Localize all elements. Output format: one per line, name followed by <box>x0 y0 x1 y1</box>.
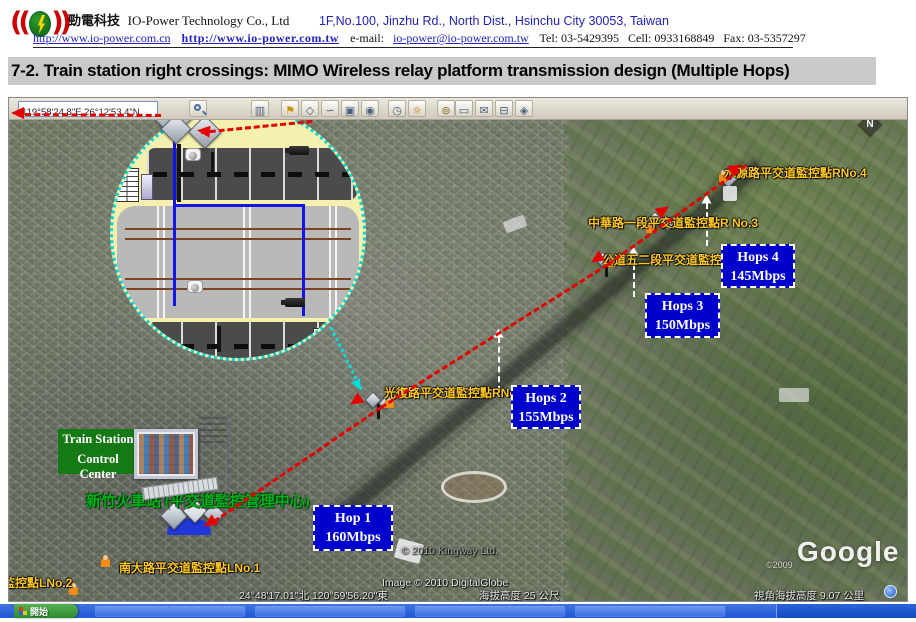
hop3-label: Hops 3 <box>662 299 704 314</box>
hop3-rate: 150Mbps <box>647 318 718 334</box>
email-label: e-mail: <box>350 31 384 45</box>
arrowhead-to-antenna <box>196 124 210 137</box>
building-white <box>779 388 809 402</box>
rail-line <box>125 278 351 280</box>
pushpin-icon: ⚑ <box>285 104 295 117</box>
hop2-box: Hops 2 155Mbps <box>511 385 581 429</box>
hop2-rate: 155Mbps <box>513 410 579 426</box>
system-tray <box>776 604 916 618</box>
hop1-label: Hop 1 <box>335 511 371 526</box>
logo-arcs-left-icon: (( <box>10 7 27 38</box>
toolbar-view-in-maps-button[interactable]: ◈ <box>515 100 533 117</box>
camera-grid-screen <box>139 434 193 474</box>
hop2-label: Hops 2 <box>525 391 567 406</box>
crossing-point-l1-label: 南大路平交道監控點LNo.1 <box>119 559 260 576</box>
windows-taskbar: 開始 <box>0 604 916 618</box>
company-line: 勁電科技 IO-Power Technology Co., Ltd 1F,No.… <box>68 10 669 29</box>
control-center-line2: Control Center <box>58 452 138 482</box>
camera-pole <box>177 144 181 202</box>
network-cable-horizontal <box>173 204 305 207</box>
station-label: 新竹火車站 (平交道監控管理中心) <box>86 490 310 511</box>
company-name-en: IO-Power Technology Co., Ltd <box>128 13 290 28</box>
taskbar-task-button[interactable] <box>415 606 565 617</box>
taskbar-task-button[interactable] <box>95 606 245 617</box>
hop3-box: Hops 3 150Mbps <box>645 293 720 338</box>
dome-camera-icon <box>185 148 201 161</box>
taskbar-task-button[interactable] <box>575 606 725 617</box>
url-cn-link[interactable]: http://www.io-power.com.cn <box>33 31 171 45</box>
maps-view-icon: ◈ <box>520 104 528 117</box>
windows-logo-icon <box>19 607 27 615</box>
toolbar-ruler-button[interactable]: ▭ <box>455 100 473 117</box>
dome-camera-icon <box>187 280 203 293</box>
sun-icon: ☼ <box>412 104 422 117</box>
google-earth-map[interactable]: ▥ ⚑ ◇ ∽ ▣ ◉ ◷ ☼ ⊚ ▭ ✉ ⊟ ◈ <box>8 97 908 602</box>
letterhead: (( )) 勁電科技 IO-Power Technology Co., Ltd … <box>0 0 916 54</box>
print-icon: ⊟ <box>499 104 508 117</box>
google-copyright: ©2009 <box>766 560 793 570</box>
taskbar-task-button[interactable] <box>255 606 405 617</box>
google-logo: Google <box>797 536 899 568</box>
slide-title: 7-2. Train station right crossings: MIMO… <box>8 57 876 81</box>
hop4-box: Hops 4 145Mbps <box>721 244 795 288</box>
station-highlight-circle <box>110 105 366 361</box>
box-camera-icon <box>285 298 305 307</box>
streaming-icon <box>884 585 897 598</box>
email-link[interactable]: io-power@io-power.com.tw <box>393 31 529 45</box>
company-address: 1F,No.100, Jinzhu Rd., North Dist., Hsin… <box>319 14 669 28</box>
toolbar-historical-imagery-button[interactable]: ◷ <box>388 100 406 117</box>
eye-altitude-readout: 視角海拔高度 9.07 公里 <box>754 588 864 602</box>
start-button[interactable]: 開始 <box>14 604 78 618</box>
contact-line: http://www.io-power.com.cn http://www.io… <box>33 31 812 46</box>
arrowhead-left <box>11 107 24 119</box>
toolbar-record-tour-button[interactable]: ◉ <box>361 100 379 117</box>
rail-line <box>125 288 351 290</box>
rail-line <box>125 228 351 230</box>
hop4-rate: 145Mbps <box>723 269 793 285</box>
presentation-slide: (( )) 勁電科技 IO-Power Technology Co., Ltd … <box>0 0 916 622</box>
path-icon: ∽ <box>325 104 334 117</box>
camera-pole <box>211 152 214 174</box>
control-center-line1: Train Station <box>63 432 134 446</box>
email-icon: ✉ <box>479 104 488 117</box>
equipment-rack-icon <box>115 168 139 202</box>
toolbar-polygon-button[interactable]: ◇ <box>301 100 319 117</box>
stadium-track <box>441 471 507 503</box>
start-label: 開始 <box>30 605 48 618</box>
pointer-coordinates: 24°48'17.01"北 120°59'56.20"東 <box>239 588 388 602</box>
toolbar-pushpin-button[interactable]: ⚑ <box>281 100 299 117</box>
toolbar-email-button[interactable]: ✉ <box>475 100 493 117</box>
fax-text: Fax: 03-5357297 <box>723 31 805 45</box>
toolbar-print-button[interactable]: ⊟ <box>495 100 513 117</box>
hop1-rate: 160Mbps <box>315 530 391 546</box>
railway-band <box>117 206 359 318</box>
company-name-zh: 勁電科技 <box>68 13 120 28</box>
planet-icon: ⊚ <box>441 104 450 117</box>
search-button[interactable] <box>189 100 207 117</box>
hop1-box: Hop 1 160Mbps <box>313 505 393 551</box>
surveillance-monitor <box>134 429 198 479</box>
crossing-point-l2-label: 監控點LNo.2 <box>8 574 72 591</box>
hop4-label: Hops 4 <box>737 250 779 265</box>
url-tw-link[interactable]: http://www.io-power.com.tw <box>182 31 340 45</box>
rail-line <box>125 238 351 240</box>
search-icon <box>194 104 201 111</box>
network-cable-vertical <box>173 138 176 306</box>
lane-divider <box>153 172 351 177</box>
box-camera-icon <box>289 146 309 155</box>
elevation-readout: 海拔高度 25 公尺 <box>479 588 560 602</box>
toolbar-image-overlay-button[interactable]: ▣ <box>341 100 359 117</box>
cell-text: Cell: 0933168849 <box>628 31 714 45</box>
image-overlay-icon: ▣ <box>345 104 355 117</box>
toolbar-planets-button[interactable]: ⊚ <box>437 100 455 117</box>
slide-title-bar: 7-2. Train station right crossings: MIMO… <box>8 57 876 85</box>
toolbar-sidebar-button[interactable]: ▥ <box>251 100 269 117</box>
ruler-icon: ▭ <box>459 104 469 117</box>
relay4-shelter <box>723 186 737 201</box>
record-tour-icon: ◉ <box>365 104 375 117</box>
header-rule <box>33 47 793 48</box>
equipment-cabinet-icon <box>141 174 153 200</box>
map-copyright: © 2010 Kingway Ltd. <box>401 545 498 557</box>
lane-divider <box>153 344 337 349</box>
control-center-box: Train Station Control Center <box>58 429 138 474</box>
tel-text: Tel: 03-5429395 <box>540 31 619 45</box>
polygon-icon: ◇ <box>306 104 314 117</box>
sidebar-icon: ▥ <box>255 104 265 117</box>
toolbar-sunlight-button[interactable]: ☼ <box>408 100 426 117</box>
worker-icon <box>101 559 110 567</box>
camera-pole <box>217 326 221 352</box>
clock-icon: ◷ <box>392 104 402 117</box>
toolbar-path-button[interactable]: ∽ <box>321 100 339 117</box>
